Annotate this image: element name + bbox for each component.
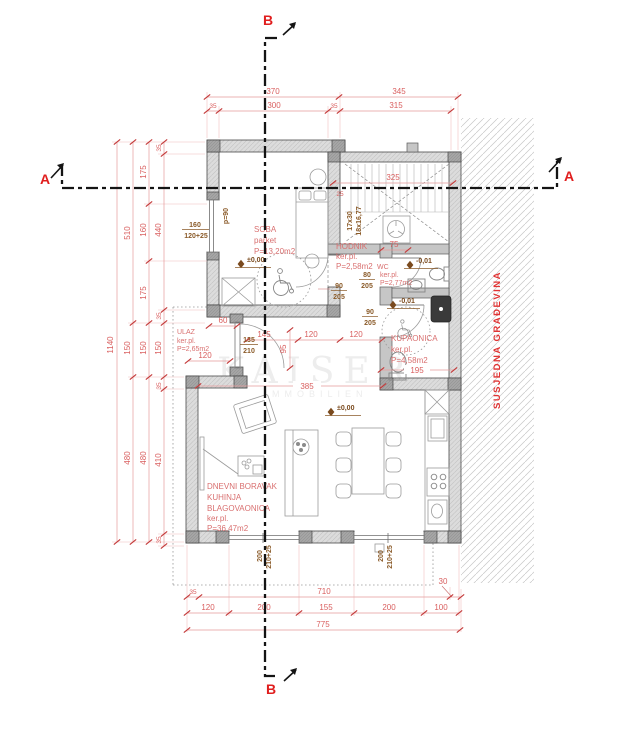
section-marker-b-bottom: B — [266, 681, 276, 697]
dim-label: 35 — [156, 536, 163, 544]
washing-machine — [383, 216, 410, 243]
room-name: DNEVNI BORAVAK — [207, 482, 278, 491]
wardrobe — [222, 278, 255, 306]
level-label: -0,01 — [416, 258, 432, 265]
dim-label: 120 — [304, 330, 318, 339]
dim-label: 315 — [389, 101, 403, 110]
armchair — [233, 394, 277, 434]
dim-label: 35 — [330, 103, 338, 110]
dim-label: 155 — [319, 603, 333, 612]
bed — [296, 169, 328, 268]
south-window-2 — [354, 532, 424, 543]
dim-label: 510 — [123, 226, 132, 240]
level-label: ±0,00 — [247, 257, 265, 264]
level-label: -0,01 — [399, 298, 415, 305]
room-finish: ker.pl. — [380, 272, 399, 279]
door-size: 205 — [364, 320, 376, 327]
section-marker-b-top: B — [263, 12, 273, 28]
dim-label: 100 — [434, 603, 448, 612]
stair-label: 17x30 — [347, 211, 354, 231]
dim-label: 60 — [219, 316, 228, 325]
window-size: 200 — [257, 550, 264, 562]
soba-window-size: 120+25 — [184, 233, 208, 240]
dim-label: 385 — [300, 382, 314, 391]
parapet-label: p=90 — [223, 208, 230, 224]
soba-window-size: 160 — [189, 222, 201, 229]
dim-label: 175 — [139, 165, 148, 179]
dim-label: 480 — [139, 451, 148, 465]
room-area: P=2,77m2 — [380, 280, 412, 287]
dim-label: 35 — [156, 312, 163, 320]
window-size: 200 — [378, 550, 385, 562]
door-size: 135 — [243, 337, 255, 344]
dim-label: 30 — [439, 577, 448, 586]
dim-label: 25 — [336, 191, 344, 198]
dim-label: 35 — [189, 589, 197, 596]
dim-label: 35 — [209, 103, 217, 110]
dim-label: 150 — [123, 341, 132, 355]
dim-label: 345 — [392, 87, 406, 96]
room-finish: ker.pl. — [391, 345, 412, 354]
dim-label: 120 — [349, 330, 363, 339]
dim-label: 75 — [390, 240, 399, 249]
room-finish: ker.pl. — [336, 252, 357, 261]
room-name: BLAGOVAONICA — [207, 504, 271, 513]
dim-label: 325 — [386, 173, 400, 182]
neighbor-label: SUSJEDNA GRAĐEVINA — [492, 271, 503, 409]
dim-label: 410 — [154, 453, 163, 467]
dim-label: 710 — [317, 587, 331, 596]
soba-door — [296, 255, 328, 287]
door-size: 80 — [363, 272, 371, 279]
section-marker-a-left: A — [40, 171, 50, 187]
dim-label: 300 — [267, 101, 281, 110]
dim-label: 775 — [316, 620, 330, 629]
dining-set — [336, 428, 401, 498]
room-name: KUHINJA — [207, 493, 242, 502]
dim-label: 95 — [279, 344, 288, 353]
dim-label: 175 — [139, 286, 148, 300]
dim-label: 480 — [123, 451, 132, 465]
section-marker-a-right: A — [564, 168, 574, 184]
dim-label: 440 — [154, 223, 163, 237]
dim-label: 35 — [156, 144, 163, 152]
room-finish: ker.pl. — [177, 338, 196, 345]
room-area: P=2,58m2 — [336, 262, 373, 271]
room-area: P=4,58m2 — [391, 356, 428, 365]
tv-cabinet — [238, 456, 264, 476]
dim-label: 150 — [154, 341, 163, 355]
room-area: P=13,20m2 — [254, 247, 296, 256]
watermark-sub: IMMOBILIEN — [264, 389, 367, 399]
door-size: 210 — [243, 348, 255, 355]
dim-label: 370 — [266, 87, 280, 96]
dim-label: 120 — [201, 603, 215, 612]
window-size: 210+25 — [387, 545, 394, 569]
kitchen — [375, 390, 449, 552]
dim-label: 1140 — [106, 336, 115, 354]
room-name: HODNIK — [336, 242, 368, 251]
dim-label: 200 — [382, 603, 396, 612]
door-size: 205 — [361, 283, 373, 290]
room-name: KUPAONICA — [391, 334, 438, 343]
dim-label: 160 — [139, 223, 148, 237]
floor-plan-page: KAISER IMMOBILIEN SUSJEDNA GRAĐEVINA — [0, 0, 634, 732]
door-size: 90 — [335, 283, 343, 290]
room-finish: ker.pl. — [207, 514, 228, 523]
dim-label: 195 — [410, 366, 424, 375]
dim-label: 150 — [139, 341, 148, 355]
door-size: 205 — [333, 294, 345, 301]
soba-window — [207, 200, 219, 252]
sofa — [285, 430, 318, 516]
room-name: WC — [377, 264, 389, 271]
floor-plan-drawing: KAISER IMMOBILIEN SUSJEDNA GRAĐEVINA — [0, 0, 634, 732]
stair-label: 18x16,77 — [356, 206, 363, 235]
dim-label: 35 — [156, 382, 163, 390]
room-area: P=2,65m2 — [177, 346, 209, 353]
room-area: P=36,47m2 — [207, 524, 249, 533]
window-size: 210+25 — [266, 545, 273, 569]
level-label: ±0,00 — [337, 405, 355, 412]
room-name: ULAZ — [177, 329, 196, 336]
door-size: 90 — [366, 309, 374, 316]
